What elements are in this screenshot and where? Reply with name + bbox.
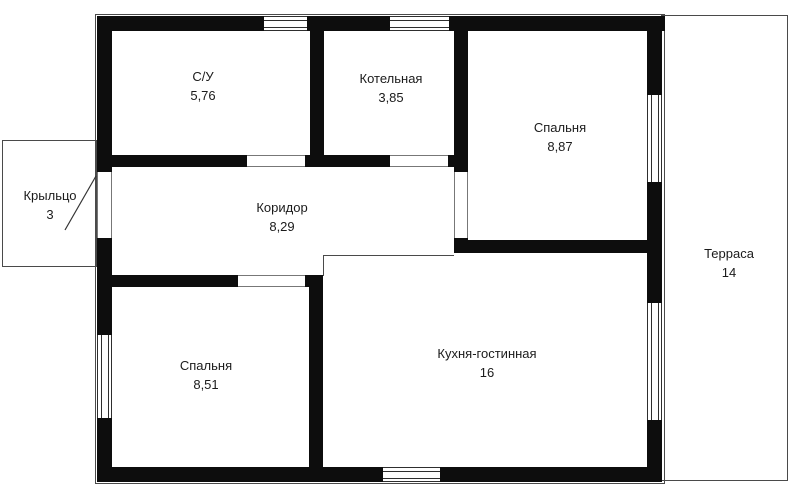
room-label-terrace: Терраса 14 [704,244,754,282]
room-name: С/У [190,67,215,86]
room-name: Коридор [256,198,307,217]
window-right-bedroom [647,95,662,182]
wall-bedroom-kitchen [454,240,662,253]
room-name: Котельная [360,69,423,88]
room-label-bedroom2: Спальня 8,51 [180,356,232,394]
room-area: 8,87 [534,137,586,156]
wall-top [97,16,665,31]
window-bottom-kitchen [383,467,440,482]
room-name: Терраса [704,244,754,263]
door-su-opening [247,155,305,167]
wall-bottom [97,467,662,482]
room-area: 3,85 [360,88,423,107]
window-pane [383,471,440,479]
room-area: 16 [437,363,536,382]
room-label-porch: Крыльцо 3 [23,186,76,224]
room-label-bedroom1: Спальня 8,87 [534,118,586,156]
room-label-boiler: Котельная 3,85 [360,69,423,107]
room-area: 8,51 [180,375,232,394]
window-pane [101,335,109,418]
window-top-boiler [390,16,449,31]
window-top-su [264,16,307,31]
door-boiler-opening [390,155,448,167]
room-area: 5,76 [190,86,215,105]
window-pane [651,303,659,420]
door-bedroom2-opening [238,275,305,287]
room-name: Спальня [534,118,586,137]
room-name: Крыльцо [23,186,76,205]
floor-plan: С/У 5,76 Котельная 3,85 Спальня 8,87 Кор… [0,0,794,502]
window-pane [651,95,659,182]
door-bedroom1-opening [454,172,468,238]
room-label-kitchen-living: Кухня-гостинная 16 [437,344,536,382]
open-boundary-horizontal [323,255,454,256]
room-area: 14 [704,263,754,282]
window-left-bedroom2 [97,335,112,418]
room-label-su: С/У 5,76 [190,67,215,105]
window-right-kitchen [647,303,662,420]
window-pane [264,20,307,28]
room-label-corridor: Коридор 8,29 [256,198,307,236]
wall-bedroom2-kitchen [309,275,323,467]
room-name: Спальня [180,356,232,375]
window-pane [390,20,449,28]
open-boundary-vertical [323,255,324,276]
room-area: 8,29 [256,217,307,236]
wall-su-boiler [310,31,324,167]
room-name: Кухня-гостинная [437,344,536,363]
room-area: 3 [23,205,76,224]
